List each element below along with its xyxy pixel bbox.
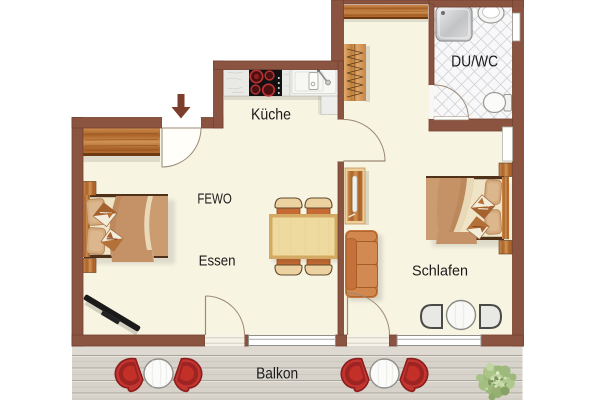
svg-text:Essen: Essen	[199, 252, 236, 269]
svg-text:FEWO: FEWO	[197, 190, 232, 207]
svg-text:Balkon: Balkon	[256, 366, 298, 383]
svg-text:Küche: Küche	[251, 107, 291, 124]
svg-text:DU/WC: DU/WC	[451, 54, 498, 71]
svg-text:Schlafen: Schlafen	[412, 263, 468, 280]
